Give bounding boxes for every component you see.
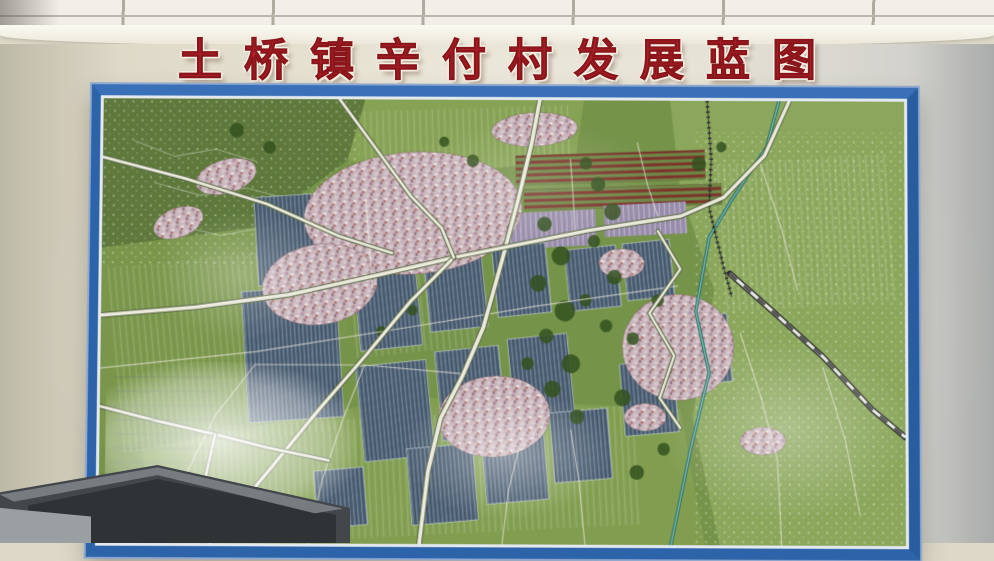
tree-cluster	[544, 381, 561, 398]
tree-cluster	[579, 294, 591, 307]
tree-cluster	[521, 357, 533, 370]
orchard-block	[516, 150, 706, 185]
village-cluster	[599, 249, 644, 279]
office-printer	[0, 465, 350, 543]
tree-cluster	[562, 354, 581, 373]
tree-cluster	[588, 235, 600, 248]
tree-cluster	[614, 389, 631, 406]
tree-cluster	[263, 141, 275, 154]
village-cluster	[624, 403, 665, 431]
village-cluster	[740, 427, 786, 455]
tree-cluster	[627, 332, 639, 345]
photo-of-wall-map: 土桥镇辛付村发展蓝图	[0, 0, 994, 543]
tree-cluster	[580, 157, 592, 170]
tree-cluster	[692, 156, 706, 171]
tree-cluster	[600, 319, 612, 332]
tree-cluster	[439, 136, 449, 147]
greenhouse-block	[406, 443, 478, 525]
tree-cluster	[630, 465, 645, 480]
tree-cluster	[591, 177, 605, 192]
tree-cluster	[607, 270, 621, 285]
tree-cluster	[604, 203, 620, 220]
tree-cluster	[657, 443, 669, 456]
tree-cluster	[716, 142, 726, 153]
village-cluster	[622, 294, 734, 400]
greenhouse-block	[356, 360, 435, 462]
tree-cluster	[530, 275, 547, 292]
wall-shadow-right	[909, 44, 994, 543]
tree-cluster	[467, 154, 479, 167]
blueprint-title: 土桥镇辛付村发展蓝图	[11, 38, 994, 84]
tree-cluster	[539, 329, 553, 344]
tree-cluster	[537, 217, 551, 232]
tree-cluster	[570, 409, 585, 424]
tree-cluster	[552, 246, 571, 265]
